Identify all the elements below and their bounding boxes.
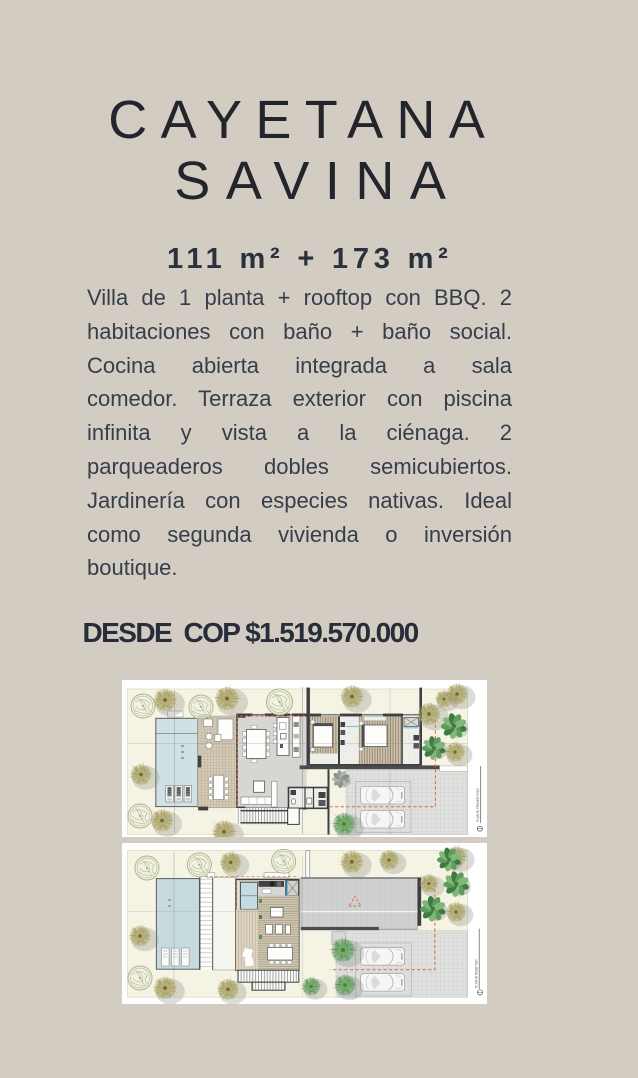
svg-text:PLANTA ROOFTOP: PLANTA ROOFTOP (474, 959, 478, 988)
svg-text:PLANTA PRIMER PISO: PLANTA PRIMER PISO (476, 788, 480, 822)
